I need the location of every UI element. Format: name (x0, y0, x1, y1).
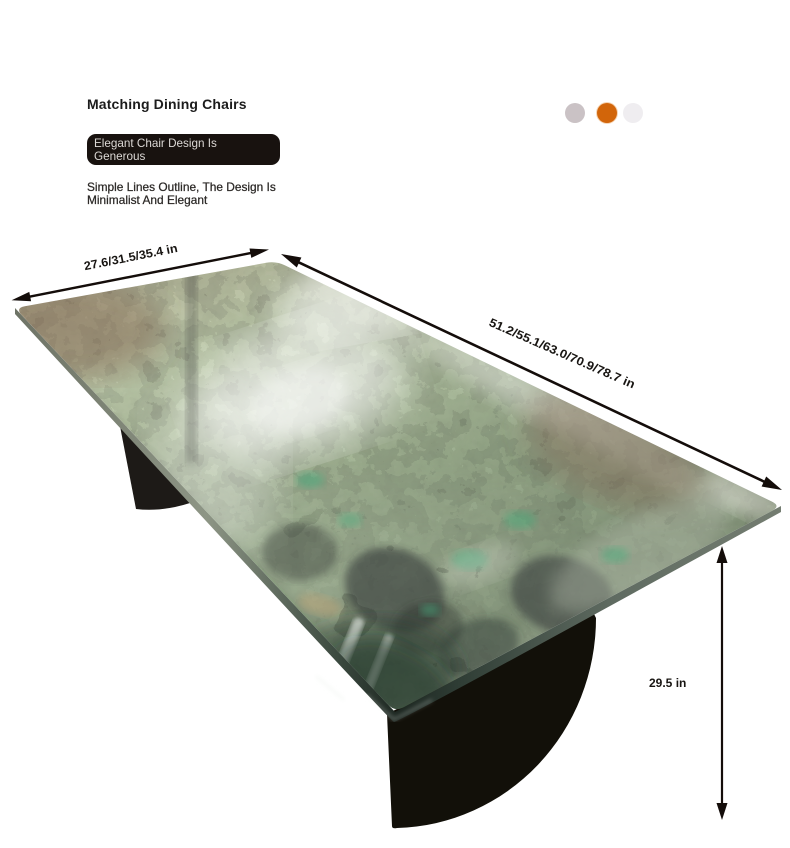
svg-text:29.5 in: 29.5 in (649, 676, 686, 690)
svg-text:27.6/31.5/35.4 in: 27.6/31.5/35.4 in (83, 241, 179, 273)
